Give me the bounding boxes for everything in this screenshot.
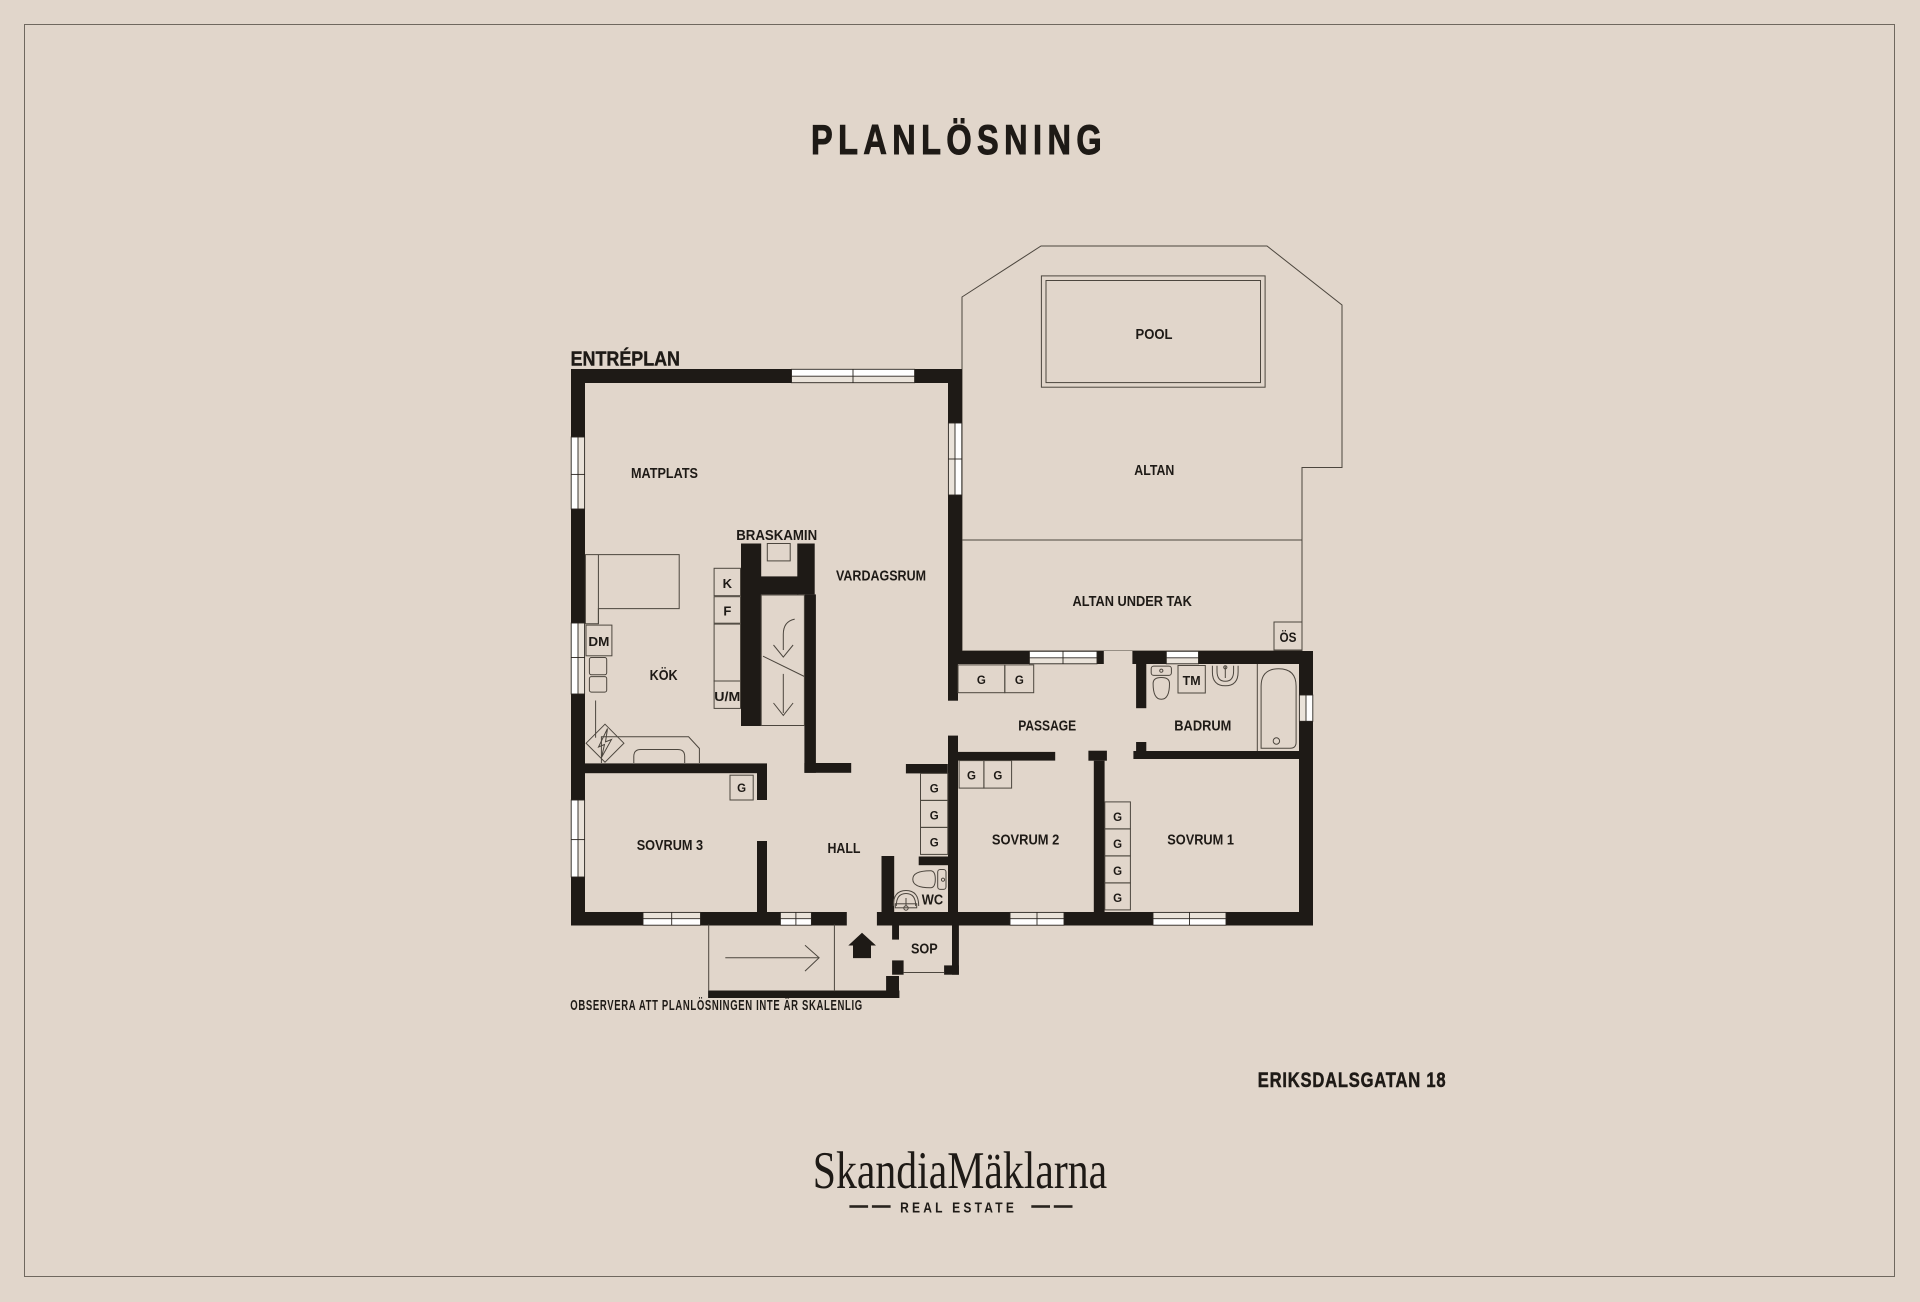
svg-text:SOVRUM 3: SOVRUM 3 [637,837,703,854]
svg-text:ALTAN UNDER TAK: ALTAN UNDER TAK [1073,593,1193,610]
svg-text:F: F [723,604,731,619]
svg-text:HALL: HALL [828,840,861,857]
svg-text:U/M: U/M [714,690,740,704]
svg-text:OBSERVERA ATT PLANLÖSNINGEN IN: OBSERVERA ATT PLANLÖSNINGEN INTE ÄR SKAL… [570,997,863,1014]
svg-text:G: G [930,783,939,795]
svg-text:PLANLÖSNING: PLANLÖSNING [811,116,1107,163]
svg-text:G: G [737,783,746,795]
svg-text:SkandiaMäklarna: SkandiaMäklarna [813,1142,1107,1200]
svg-text:G: G [930,837,939,849]
svg-text:SOP: SOP [911,942,938,958]
svg-text:ERIKSDALSGATAN 18: ERIKSDALSGATAN 18 [1258,1069,1447,1092]
svg-text:ENTRÉPLAN: ENTRÉPLAN [571,348,680,371]
svg-text:SOVRUM 2: SOVRUM 2 [992,832,1059,849]
svg-text:PASSAGE: PASSAGE [1018,718,1076,735]
svg-text:K: K [723,576,733,591]
svg-text:BADRUM: BADRUM [1174,718,1231,735]
svg-text:DM: DM [588,634,609,649]
svg-text:G: G [1113,812,1122,824]
svg-text:G: G [993,771,1002,783]
svg-text:G: G [930,810,939,822]
svg-text:G: G [977,675,986,687]
svg-text:TM: TM [1183,674,1201,688]
svg-text:KÖK: KÖK [650,667,678,684]
svg-text:VARDAGSRUM: VARDAGSRUM [836,568,926,585]
svg-text:G: G [1113,893,1122,905]
svg-text:ÖS: ÖS [1280,630,1297,645]
svg-text:REAL ESTATE: REAL ESTATE [900,1200,1017,1217]
svg-text:BRASKAMIN: BRASKAMIN [736,527,817,544]
svg-text:MATPLATS: MATPLATS [631,465,698,482]
svg-text:G: G [967,771,976,783]
svg-text:G: G [1015,675,1024,687]
svg-text:SOVRUM 1: SOVRUM 1 [1167,832,1234,849]
svg-text:ALTAN: ALTAN [1134,462,1174,479]
svg-text:G: G [1113,866,1122,878]
svg-text:G: G [1113,839,1122,851]
svg-text:POOL: POOL [1136,326,1173,343]
svg-text:WC: WC [922,892,944,908]
